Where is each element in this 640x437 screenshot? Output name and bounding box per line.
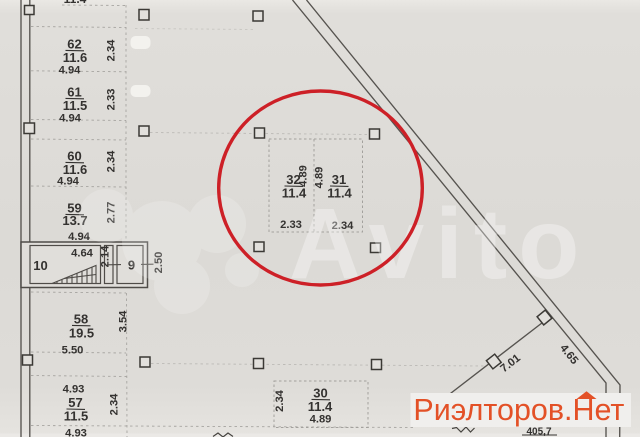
svg-text:2.14: 2.14 [100, 245, 112, 268]
svg-text:5.50: 5.50 [62, 345, 84, 357]
svg-text:4.94: 4.94 [57, 176, 80, 188]
svg-text:4.94: 4.94 [59, 65, 82, 77]
svg-text:58: 58 [74, 312, 88, 327]
svg-text:11.5: 11.5 [64, 409, 89, 424]
svg-text:4.89: 4.89 [310, 414, 332, 426]
svg-text:3.54: 3.54 [118, 310, 130, 333]
svg-text:4.94: 4.94 [59, 113, 82, 125]
svg-text:4.64: 4.64 [71, 248, 94, 260]
svg-text:2.34: 2.34 [106, 39, 118, 62]
svg-text:2.33: 2.33 [106, 89, 118, 111]
svg-text:11.4: 11.4 [308, 399, 333, 414]
svg-text:4.89: 4.89 [298, 165, 310, 187]
svg-text:11.4: 11.4 [64, 0, 87, 6]
svg-text:4.65: 4.65 [557, 342, 580, 366]
svg-text:19.5: 19.5 [69, 326, 94, 341]
svg-text:11.5: 11.5 [63, 98, 88, 113]
svg-text:4.93: 4.93 [63, 384, 85, 396]
svg-text:2.34: 2.34 [109, 393, 121, 416]
svg-text:10: 10 [33, 258, 47, 273]
svg-text:11.6: 11.6 [63, 50, 88, 65]
svg-text:4.89: 4.89 [314, 167, 326, 189]
svg-text:4.93: 4.93 [65, 428, 87, 437]
svg-text:2.34: 2.34 [106, 150, 118, 173]
svg-text:2.34: 2.34 [274, 389, 286, 412]
svg-text:7.01: 7.01 [498, 352, 523, 375]
